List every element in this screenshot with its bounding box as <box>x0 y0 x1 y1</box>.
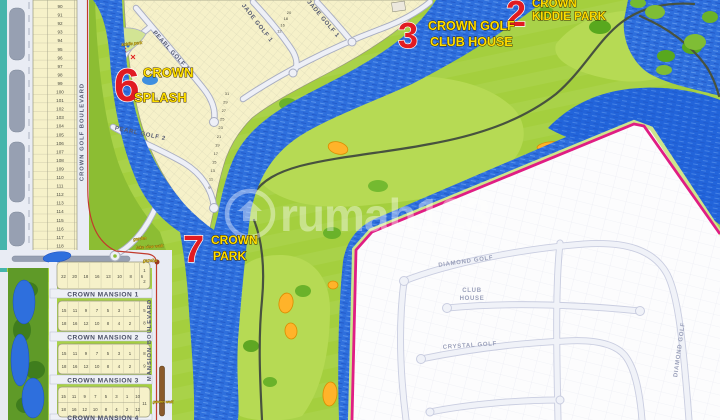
left-lot-number: 97 <box>57 64 63 69</box>
left-lot-number: 94 <box>57 38 63 43</box>
mansion-lot-number: 16 <box>72 407 77 412</box>
marker-7-line1: CROWN <box>211 233 258 247</box>
left-lot-number: 112 <box>56 192 64 197</box>
pearl-lot-number: 23 <box>218 125 223 130</box>
roundabout-island <box>113 254 117 258</box>
left-lot-lines <box>33 2 77 258</box>
mansion2-header: CROWN MANSION 2 <box>67 335 139 342</box>
left-lot-number: 114 <box>56 209 64 214</box>
teal-edge-strip <box>0 0 7 272</box>
mansion-lot-number: 12 <box>84 321 89 326</box>
mansion-lot-number: 20 <box>72 274 77 279</box>
mansion-lot-number: 15 <box>62 351 67 356</box>
boulevard-pole <box>160 366 165 416</box>
mansion-lot-number: 10 <box>95 321 100 326</box>
left-lot-number: 109 <box>56 166 64 171</box>
mansion-lot-number: 11 <box>142 401 147 406</box>
pearl-lot-number: 27 <box>222 108 227 113</box>
mansion-lot-number: 12 <box>82 407 87 412</box>
left-lot-number: 98 <box>57 72 63 77</box>
garden-walk-label: garden walk <box>153 400 175 404</box>
left-lot-number: 102 <box>56 107 64 112</box>
club-house-label-2: HOUSE <box>460 296 485 302</box>
left-lot-number: 106 <box>56 141 64 146</box>
mansion-lot-number: 22 <box>61 274 66 279</box>
marker-7-number: 7 <box>183 229 204 271</box>
pearl-lot-number: 25 <box>220 117 225 122</box>
mansion-lot-number: 18 <box>84 274 89 279</box>
jade-lot-number: 20 <box>287 10 292 15</box>
mansion-lot-number: 10 <box>93 407 98 412</box>
mansion4-header: CROWN MANSION 4 <box>67 415 139 420</box>
mansion3-header: CROWN MANSION 3 <box>67 378 139 385</box>
mansion-lot-number: 15 <box>62 308 67 313</box>
mansion-lot-number: 13 <box>106 274 111 279</box>
left-lot-number: 91 <box>57 13 63 18</box>
pearl-lot-number: 15 <box>212 159 217 164</box>
pearl-lot-number: 19 <box>215 142 220 147</box>
pearl-lot-number: 31 <box>225 91 230 96</box>
mansion-lot-number: 10 <box>117 274 122 279</box>
left-lot-number: 115 <box>56 218 64 223</box>
crown-golf-boulevard-label: CROWN GOLF BOULEVARD <box>80 83 86 181</box>
mansion-lot-number: 10 <box>95 364 100 369</box>
mansion-lot-number: 10 <box>135 394 140 399</box>
marker-6-line1: CROWN <box>143 65 194 80</box>
jade-lot-number: 12 <box>277 29 282 34</box>
marker-2-line2: KIDDIE PARK <box>532 11 607 23</box>
left-lot-number: 118 <box>56 243 64 248</box>
marker-3-number: 3 <box>398 15 418 56</box>
marker-3-line2: CLUB HOUSE <box>430 35 513 49</box>
map-canvas: 9091929394959697989910010110210310410510… <box>0 0 720 420</box>
mansion-lot-number: 12 <box>135 407 140 412</box>
left-lot-number: 104 <box>56 124 64 129</box>
pearl-lot-number: 29 <box>223 100 228 105</box>
club-house-label-1: CLUB <box>462 288 481 294</box>
marker-6-line2: SPLASH <box>134 90 187 105</box>
marker-2-line1: CROWN <box>532 0 577 10</box>
mansion1-header: CROWN MANSION 1 <box>67 292 139 299</box>
mansion-lot-number: 16 <box>73 364 78 369</box>
pearl-lot-number: 17 <box>214 151 219 156</box>
mansion-lot-number: 18 <box>62 364 67 369</box>
mansion-lot-number: 11 <box>73 308 78 313</box>
watermark-text: rumah123 <box>280 189 489 241</box>
left-lot-number: 103 <box>56 115 64 120</box>
jade-lot-number: 18 <box>284 16 289 21</box>
left-edge-lower <box>0 272 8 420</box>
left-lot-number: 111 <box>57 184 64 189</box>
mansion-boulevard-label: MANSION BOULEVARD <box>147 299 153 381</box>
mansion4-side: 11 <box>142 401 147 406</box>
mansion-lot-number: 12 <box>84 364 89 369</box>
left-lot-number: 99 <box>57 81 63 86</box>
left-lot-number: 93 <box>57 30 63 35</box>
left-lot-number: 105 <box>56 132 64 137</box>
mansion-lot-number: 16 <box>73 321 78 326</box>
site-plan-map: 9091929394959697989910010110210310410510… <box>0 0 720 420</box>
left-lot-number: 116 <box>56 226 64 231</box>
mansion-lot-number: 15 <box>61 394 66 399</box>
marker-3-line1: CROWN GOLF <box>428 19 515 33</box>
mansion-lot-number: 11 <box>72 394 77 399</box>
left-lot-number: 110 <box>56 175 64 180</box>
left-lot-number: 96 <box>57 55 63 60</box>
left-lot-number: 101 <box>56 98 64 103</box>
left-lot-number: 90 <box>57 4 63 9</box>
jade-lot-number: 16 <box>280 22 285 27</box>
left-lot-number: 108 <box>56 158 64 163</box>
marker-7-line2: PARK <box>213 249 246 263</box>
left-lot-number: 95 <box>57 47 63 52</box>
mansion-lot-number: 16 <box>95 274 100 279</box>
left-lot-number: 107 <box>56 149 64 154</box>
mansion-lot-number: 18 <box>61 407 66 412</box>
mansion-lot-number: 18 <box>62 321 67 326</box>
left-lot-number: 117 <box>56 235 64 240</box>
left-lot-number: 100 <box>56 90 64 95</box>
pearl-lot-number: 13 <box>210 168 215 173</box>
left-lot-number: 92 <box>57 21 63 26</box>
pearl-lot-number: 21 <box>217 134 222 139</box>
mansion-lot-number: 11 <box>73 351 78 356</box>
left-lot-number: 113 <box>56 201 64 206</box>
gazebo-label: gazebo <box>143 258 158 263</box>
